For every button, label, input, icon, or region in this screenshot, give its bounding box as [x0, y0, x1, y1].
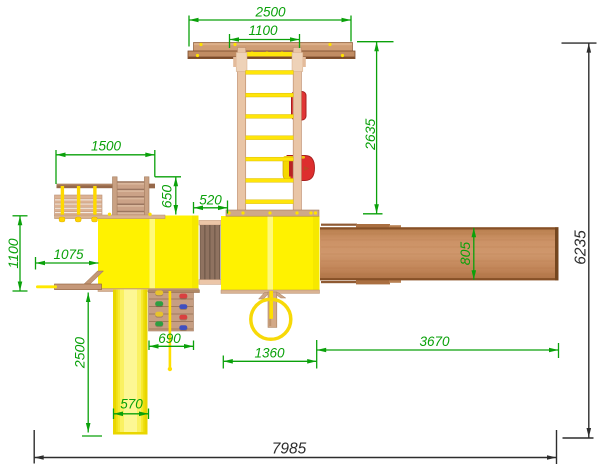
svg-text:2500: 2500	[72, 337, 88, 369]
svg-text:6235: 6235	[573, 230, 590, 265]
svg-text:1500: 1500	[91, 139, 122, 154]
svg-text:690: 690	[158, 331, 181, 346]
svg-text:7985: 7985	[272, 440, 307, 457]
svg-text:1075: 1075	[53, 247, 84, 262]
svg-text:1360: 1360	[254, 346, 285, 361]
svg-text:520: 520	[199, 193, 222, 208]
svg-text:3670: 3670	[419, 334, 450, 349]
svg-text:805: 805	[457, 242, 473, 266]
svg-text:2500: 2500	[254, 5, 286, 20]
svg-text:570: 570	[120, 397, 143, 412]
svg-text:1100: 1100	[5, 238, 21, 268]
svg-text:1100: 1100	[248, 23, 278, 38]
svg-text:2635: 2635	[362, 119, 378, 151]
svg-text:650: 650	[159, 185, 175, 209]
